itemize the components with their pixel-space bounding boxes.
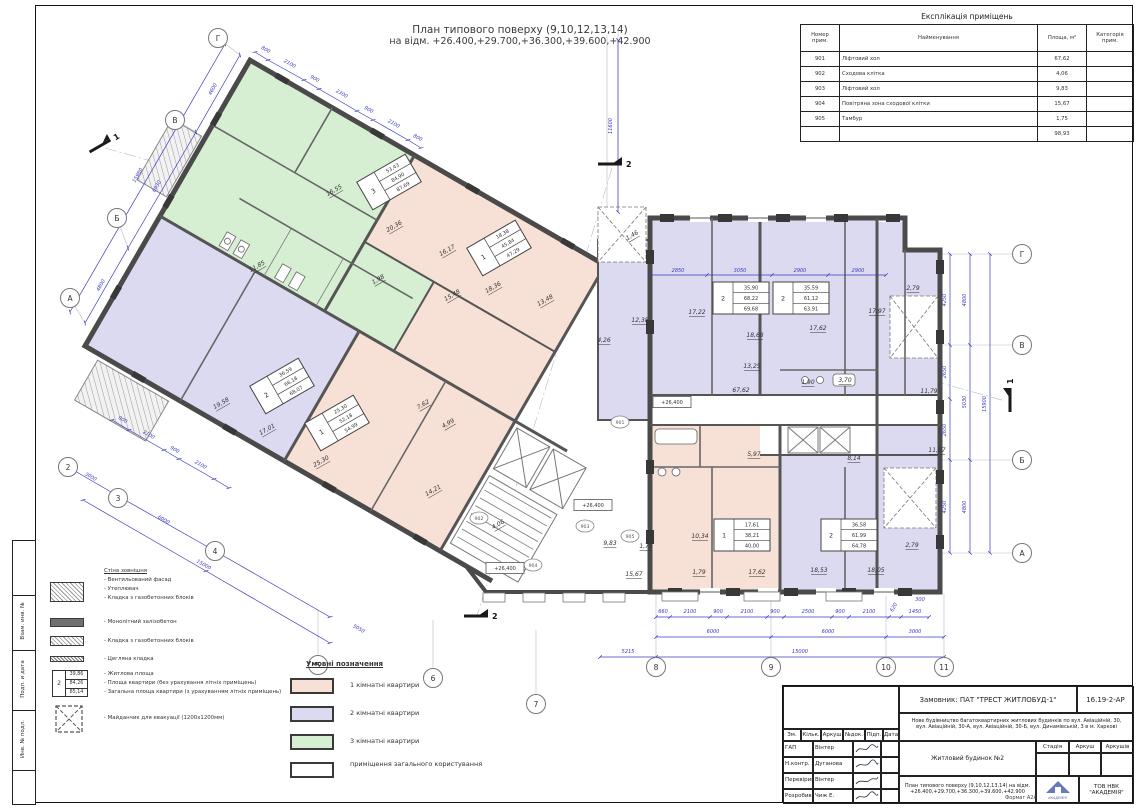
rev-header: №док. (843, 729, 865, 741)
monolith-swatch (50, 618, 84, 627)
axis-bubble: В (166, 111, 185, 130)
room-area-text: 13,25 (743, 363, 760, 370)
legend-label: 1 кімнатні квартири (350, 681, 419, 689)
axis-label: Б (114, 214, 119, 223)
section-bar (1009, 388, 1012, 412)
date-cell (881, 741, 899, 757)
dimension-label: 900 (770, 609, 780, 615)
stage-header: Стадія (1036, 741, 1069, 753)
axis-label: В (172, 116, 177, 125)
room-area-label: 13,25 (743, 363, 760, 371)
sheets-value (1101, 753, 1134, 776)
room-number-circle: 903 (576, 520, 594, 532)
dimension-label: 4250 (942, 294, 948, 307)
dimension-label: 2650 (942, 424, 948, 437)
room-area-label: 2,79 (905, 542, 919, 550)
dimension-label: 3000 (909, 629, 922, 635)
drawing-sheet: Взам. инв. № Подп. и дата Инв. № подл. П… (0, 0, 1140, 808)
building-name: Житловий будинок №2 (899, 741, 1036, 776)
axis-label: В (1019, 341, 1024, 350)
room-area-text: 12,38 (631, 317, 648, 324)
legend-text: - Площа квартири (без урахування літніх … (104, 680, 256, 686)
elevation-mark: +26,400 (574, 500, 612, 511)
stage-value (1036, 753, 1069, 776)
room-area-text: 17,97 (868, 308, 885, 315)
room-area-label: 17,22 (688, 309, 705, 317)
axis-bubble: 11 (935, 658, 954, 677)
section-arrow (1003, 388, 1009, 396)
axis-bubble: 4 (206, 542, 225, 561)
legend-label: приміщення загального користування (350, 760, 500, 768)
axis-label: 7 (534, 700, 539, 709)
room-area-label: 5,97 (747, 451, 761, 459)
dimension-label: 5215 (622, 649, 635, 655)
legend-text: - Цегляна кладка (104, 656, 154, 662)
dimension-label: 2900 (852, 268, 865, 274)
dimension-label: 5030 (962, 396, 968, 409)
signature-icon (854, 758, 880, 772)
dimension-label: 3050 (734, 268, 747, 274)
elevation-mark: +26,400 (486, 563, 524, 574)
room-number: 902 (475, 516, 484, 522)
dimension-label: 2100 (386, 118, 400, 130)
rev-header: Підп. (865, 729, 883, 741)
room-area-label: 1,90 (801, 379, 815, 387)
signature-icon (854, 742, 880, 756)
revision-grid (783, 686, 899, 729)
apartment-area-value: 17,61 (745, 522, 759, 528)
room-area-text: 9,83 (603, 540, 617, 547)
apartment-area-value: 64,78 (852, 544, 866, 550)
apartment-area-value: 69,68 (744, 307, 758, 313)
legend-item: 1 кімнатні квартири (286, 676, 516, 704)
wall-legend-heading: Стіна зовнішня (104, 568, 147, 574)
signer-role: Розробив (783, 789, 813, 804)
axis-label: А (67, 294, 73, 303)
sheet-value (1069, 753, 1101, 776)
axis-bubble: 2 (59, 458, 78, 477)
apartment-area-value: 35,90 (744, 285, 758, 291)
doc-code: 16.19-2-АР (1077, 686, 1134, 713)
room-area-text: 11,79 (920, 388, 937, 395)
section-mark: 1 (1003, 378, 1015, 412)
dimension-label: 4800 (962, 294, 968, 307)
room-area-text: 11,67 (928, 447, 945, 454)
facade-wall-swatch (50, 582, 84, 602)
dimension-label: 800 (412, 133, 423, 143)
room-area-label: 2,79 (906, 285, 920, 293)
room-area-label: 11,79 (920, 388, 937, 396)
dimension-label: 2100 (863, 609, 876, 615)
apartment-rooms-count: 2 (829, 531, 833, 539)
apartment-rooms-count: 2 (721, 294, 725, 302)
section-bar (89, 139, 111, 154)
room-area-text: 3,70 (838, 377, 852, 384)
customer: Замовник: ПАТ "ТРЕСТ ЖИТЛОБУД-1" (899, 686, 1077, 713)
legend-text: - Житлова площа (104, 671, 154, 677)
room-area-label: 9,83 (603, 540, 617, 548)
dimension-label: 900 (309, 74, 320, 84)
dimension-label: 1450 (909, 609, 922, 615)
room-area-label: 10,34 (691, 533, 708, 541)
room-number-circle: 902 (470, 512, 488, 524)
dimension-label: 2850 (672, 268, 685, 274)
dimension-label: 620 (889, 602, 899, 613)
apartment-area-box: 236,5861,9964,78 (821, 519, 877, 551)
legend-item: приміщення загального користування (286, 760, 516, 788)
three-room-swatch (290, 734, 334, 750)
room-number: 901 (616, 420, 625, 426)
dimension-label: 5050 (351, 623, 365, 635)
room-number-circle: 901 (611, 416, 629, 428)
apartment-area-value: 63,91 (804, 307, 818, 313)
room-area-label: 15,67 (625, 571, 642, 579)
brick-swatch (50, 656, 84, 662)
two-room-swatch (290, 706, 334, 722)
apartment-rooms-count: 2 (781, 294, 785, 302)
one-room-swatch (290, 678, 334, 694)
title-block: Зм. Кільк. Аркуш №док. Підп. Дата ГАП Ві… (782, 685, 1133, 803)
dimension-label: 4800 (95, 278, 107, 292)
dimension-label: 2100 (193, 459, 207, 471)
section-number: 1 (1006, 378, 1015, 384)
signer-role: Перевірив (783, 773, 813, 789)
project-line2: вул. Авіаційній, 30-А, вул. Авіаційній, … (900, 724, 1133, 730)
room-area-label: 18,05 (867, 567, 884, 575)
apartment-area-value: 61,99 (852, 533, 866, 539)
axis-bubble: Г (209, 29, 228, 48)
evacuation-pad-swatch (54, 704, 84, 734)
room-area-label: 3,70 (838, 377, 852, 385)
axis-bubble: Г (1013, 245, 1032, 264)
legend-item: 3 кімнатні квартири (286, 732, 516, 760)
axis-bubble: 8 (647, 658, 666, 677)
room-area-text: 1,90 (801, 379, 815, 386)
section-mark: 2 (464, 609, 498, 621)
room-area-text: 2,79 (905, 542, 919, 549)
signer-name: Вінтер (813, 741, 853, 757)
stage-header: Аркушів (1101, 741, 1134, 753)
room-number: 905 (626, 534, 635, 540)
room-area-text: 17,62 (748, 569, 765, 576)
signature-icon (854, 774, 880, 788)
sample-v3: 85,14 (66, 689, 87, 697)
legend-text: - Вентильований фасад (104, 577, 171, 583)
apartment-area-value: 40,00 (745, 544, 759, 550)
rev-header: Зм. (783, 729, 801, 741)
axis-bubble: Б (108, 209, 127, 228)
section-bar (464, 615, 488, 618)
axis-label: Г (216, 34, 221, 43)
section-number: 2 (626, 160, 632, 169)
dimension-label: 2100 (741, 609, 754, 615)
apartment-legend: Умовні позначення 1 кімнатні квартири 2 … (286, 660, 516, 788)
room-area-label: 18,68 (746, 332, 763, 340)
room-area-text: 5,97 (747, 451, 761, 458)
apartment-area-box: 235,5961,1263,91 (773, 282, 829, 314)
room-area-label: 18,53 (810, 567, 827, 575)
legend-text: - Монолітний залізобетон (104, 619, 177, 625)
axis-bubble: 9 (762, 658, 781, 677)
sample-v2: 84,26 (66, 680, 87, 689)
room-area-label: 11,67 (928, 447, 945, 455)
masonry-swatch (50, 636, 84, 646)
signer-name: Вінтер (813, 773, 853, 789)
room-area-label: 17,62 (748, 569, 765, 577)
legend-label: 3 кімнатні квартири (350, 737, 419, 745)
legend-title: Умовні позначення (306, 660, 516, 668)
room-area-text: 1,75 (639, 543, 653, 550)
dimension-label: 800 (260, 45, 271, 55)
elevation-value: +26,400 (661, 400, 683, 406)
axis-label: 3 (116, 494, 121, 503)
dimension-label: 6000 (156, 514, 170, 526)
axis-label: 9 (769, 663, 774, 672)
rev-header: Дата (883, 729, 899, 741)
room-area-text: 17,62 (809, 325, 826, 332)
apartment-area-box: 235,9068,2269,68 (713, 282, 769, 314)
signer-role: Н.контр. (783, 757, 813, 773)
legend-text: - Кладка з газобетонних блоків (104, 638, 194, 644)
room-area-text: 10,34 (691, 533, 708, 540)
room-area-text: 2,79 (906, 285, 920, 292)
section-arrow (480, 609, 488, 615)
legend-text: - Кладка з газобетонних блоків (104, 595, 194, 601)
axis-label: Б (1019, 456, 1024, 465)
axis-bubble: В (1013, 336, 1032, 355)
section-bar (598, 163, 622, 166)
dimension-label: 11600 (608, 118, 614, 134)
left-wing (26, 39, 680, 639)
axis-bubble: А (1013, 544, 1032, 563)
elevation-value: +26,400 (494, 566, 516, 572)
room-area-text: 18,05 (867, 567, 884, 574)
balconies (662, 592, 862, 601)
room-area-label: 4,26 (597, 337, 611, 345)
common-area-swatch (290, 762, 334, 778)
axis-bubble: 10 (877, 658, 896, 677)
signature-icon (854, 790, 880, 803)
section-mark: 2 (598, 157, 632, 169)
apartment-area-value: 35,59 (804, 285, 818, 291)
sample-v1: 39,86 (66, 671, 87, 680)
organization: ТОВ НВК "АКАДЕМІЯ" (1079, 776, 1134, 804)
axis-label: 2 (66, 463, 71, 472)
room-area-text: 18,53 (810, 567, 827, 574)
apartment-area-value: 36,58 (852, 522, 866, 528)
dimension-label: 2300 (334, 88, 348, 100)
axis-label: Г (1020, 250, 1025, 259)
dimension-label: 2900 (794, 268, 807, 274)
dimension-label: 900 (835, 609, 845, 615)
room-area-text: 4,26 (597, 337, 611, 344)
apartment-area-box: 117,6138,2140,00 (714, 519, 770, 551)
signer-name: Дуганова (813, 757, 853, 773)
axis-label: 4 (213, 547, 218, 556)
dimension-label: 2650 (942, 366, 948, 379)
room-area-label: 17,62 (809, 325, 826, 333)
axis-label: 8 (654, 663, 659, 672)
apartment-rooms-count: 1 (722, 531, 726, 539)
apartment-area-value: 38,21 (745, 533, 759, 539)
dimension-label: 900 (363, 105, 374, 115)
legend-text: - Утеплювач (104, 586, 139, 592)
signer-role: ГАП (783, 741, 813, 757)
elevation-value: +26,400 (582, 503, 604, 509)
apartment-sample-box: 2 39,86 84,26 85,14 (52, 670, 88, 697)
room-number-circle: 905 (621, 530, 639, 542)
room-area-text: 67,62 (732, 387, 749, 394)
dimension-label: 300 (915, 597, 925, 603)
stage-header: Аркуш (1069, 741, 1101, 753)
room-area-label: 1,79 (692, 569, 706, 577)
project-name: Нове будівництво багатоквартирних житлов… (899, 713, 1134, 741)
dimension-label: 15000 (792, 649, 808, 655)
legend-text: - Загальна площа квартири (з урахуванням… (104, 689, 281, 695)
room-area-label: 12,38 (631, 317, 648, 325)
dimension-label: 900 (713, 609, 723, 615)
room-number-circle: 904 (524, 559, 542, 571)
signer-name: Чиж Е. (813, 789, 853, 804)
dimension-label: 3000 (83, 471, 97, 483)
axis-bubble: 3 (109, 489, 128, 508)
academy-logo-icon (1045, 780, 1071, 794)
apartment-area-value: 61,12 (804, 296, 818, 302)
axis-label: А (1019, 549, 1025, 558)
org-logo: АКАДЕМІЯ (1036, 776, 1079, 804)
dimension-label: 2100 (684, 609, 697, 615)
room-area-text: 18,68 (746, 332, 763, 339)
dimension-label: 660 (658, 609, 668, 615)
logo-text: АКАДЕМІЯ (1045, 796, 1071, 800)
sample-num: 2 (53, 671, 66, 696)
dimension-label: 6000 (822, 629, 835, 635)
axis-label: 11 (939, 663, 949, 672)
room-area-label: 67,62 (732, 387, 749, 395)
elevation-mark: +26,400 (653, 397, 691, 408)
room-number: 904 (529, 563, 538, 569)
dimension-label: 6000 (707, 629, 720, 635)
dimension-label: 4250 (942, 501, 948, 514)
dimension-label: 15900 (982, 396, 988, 412)
signature-cell (853, 773, 881, 789)
axis-bubble: Б (1013, 451, 1032, 470)
room-area-label: 1,75 (639, 543, 653, 551)
apartment-area-value: 68,22 (744, 296, 758, 302)
signature-cell (853, 741, 881, 757)
dimension-label: 2100 (282, 58, 296, 70)
room-area-label: 17,97 (868, 308, 885, 316)
axis-label: 10 (881, 663, 891, 672)
dimension-label: 4800 (962, 501, 968, 514)
signature-cell (853, 757, 881, 773)
format-label: Формат А2А (1005, 795, 1037, 801)
section-number: 1 (112, 132, 122, 143)
date-cell (881, 789, 899, 804)
axis-bubble: А (61, 289, 80, 308)
section-number: 2 (492, 612, 498, 621)
section-mark: 1 (86, 129, 121, 156)
legend-label: 2 кімнатні квартири (350, 709, 419, 717)
date-cell (881, 757, 899, 773)
date-cell (881, 773, 899, 789)
rev-header: Кільк. (801, 729, 821, 741)
room-area-text: 17,22 (688, 309, 705, 316)
room-area-text: 15,67 (625, 571, 642, 578)
room-area-label: 8,14 (847, 455, 861, 463)
room-number: 903 (581, 524, 590, 530)
room-area-text: 1,79 (692, 569, 706, 576)
signature-cell (853, 789, 881, 804)
legend-item: 2 кімнатні квартири (286, 704, 516, 732)
axis-bubble: 7 (527, 695, 546, 714)
dimension-label: 2500 (802, 609, 815, 615)
rev-header: Аркуш (821, 729, 843, 741)
room-area-text: 8,14 (847, 455, 861, 462)
legend-text: - Майданчик для евакуації (1200х1200мм) (104, 715, 224, 721)
